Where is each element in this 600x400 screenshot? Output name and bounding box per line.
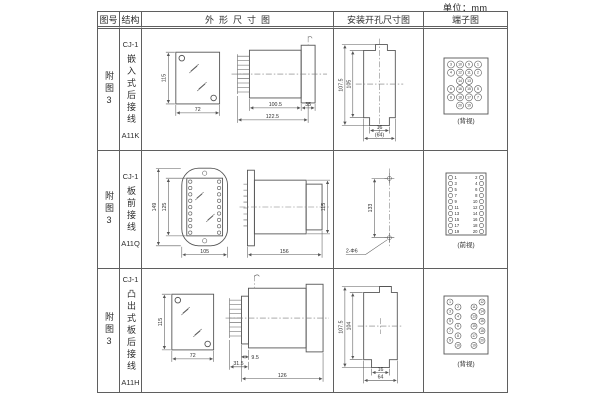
terminal-cell-row1: 3109141211214136161558181772019 (背视)	[424, 29, 507, 151]
header-terminal-diagram: 端子图	[424, 12, 507, 29]
install-cell-row1: 107.5 105 16 (64)	[334, 29, 424, 151]
structure-cell-row3: CJ-1 凸出式板后接线 A11H	[120, 269, 142, 392]
view-label: (背视)	[457, 359, 474, 368]
series-label: CJ-1	[123, 172, 139, 181]
svg-text:19: 19	[454, 229, 459, 234]
fig-label: 附图3	[104, 71, 113, 108]
svg-text:10: 10	[472, 199, 477, 204]
dim-label: 122.5	[266, 113, 279, 119]
svg-text:10: 10	[456, 343, 460, 347]
document-page: 单位：mm 图号 结构 外形尺寸图 安装开孔尺寸图 端子图 附图3 CJ-1 嵌…	[0, 0, 600, 400]
svg-text:12: 12	[458, 70, 462, 74]
svg-text:7: 7	[449, 328, 451, 332]
svg-text:12: 12	[472, 205, 477, 210]
fig-label: 附图3	[104, 191, 113, 228]
svg-text:8: 8	[457, 333, 459, 337]
terminal-diagram-a11h: 1357924681011131517191214161820 (背视)	[435, 293, 497, 369]
dim-label: 64	[378, 374, 384, 380]
svg-text:13: 13	[472, 314, 476, 318]
dim-label: 107.5	[338, 78, 344, 91]
dim-label: 125	[162, 202, 168, 211]
header-structure: 结构	[120, 12, 142, 29]
svg-text:3: 3	[450, 62, 452, 66]
header-fig-no: 图号	[98, 12, 120, 29]
svg-text:12: 12	[480, 300, 484, 304]
spec-table: 图号 结构 外形尺寸图 安装开孔尺寸图 端子图 附图3 CJ-1 嵌入式后接线 …	[97, 11, 508, 393]
svg-text:17: 17	[467, 95, 471, 99]
svg-text:10: 10	[458, 62, 462, 66]
svg-text:6: 6	[475, 187, 478, 192]
svg-text:17: 17	[472, 333, 476, 337]
svg-text:16: 16	[480, 319, 484, 323]
svg-text:15: 15	[467, 87, 471, 91]
model-code: A11Q	[121, 239, 140, 248]
svg-text:18: 18	[472, 223, 477, 228]
fig-cell-row1: 附图3	[98, 29, 120, 151]
svg-text:9: 9	[454, 199, 457, 204]
svg-text:13: 13	[467, 78, 471, 82]
terminal-cell-row2: 1357911131517192468101214161820 (前视)	[424, 151, 507, 269]
svg-text:5: 5	[477, 87, 479, 91]
svg-text:4: 4	[450, 70, 452, 74]
dim-label: 104	[346, 321, 352, 330]
dim-label: 115	[321, 202, 327, 210]
svg-text:2: 2	[477, 70, 479, 74]
svg-text:9: 9	[468, 62, 470, 66]
svg-text:15: 15	[454, 217, 459, 222]
svg-text:7: 7	[477, 95, 479, 99]
model-code: A11H	[121, 378, 139, 387]
dim-label: 105	[346, 79, 352, 88]
mount-label: 嵌入式后接线	[126, 54, 135, 126]
svg-text:3: 3	[449, 309, 451, 313]
dim-label: 126	[278, 372, 287, 378]
dim-label: 115	[158, 317, 164, 325]
fig-label: 附图3	[104, 312, 113, 349]
svg-text:11: 11	[454, 205, 459, 210]
svg-text:20: 20	[472, 229, 477, 234]
outline-drawing-a11k: 115 72 100.5 35 122.5	[142, 34, 333, 146]
dim-label: 107.5	[338, 320, 344, 333]
install-drawing-a11q: 133 2-Φ6	[334, 154, 423, 266]
svg-text:13: 13	[454, 211, 459, 216]
svg-text:9: 9	[449, 338, 451, 342]
svg-text:2: 2	[475, 175, 478, 180]
terminal-cell-row3: 1357924681011131517191214161820 (背视)	[424, 269, 507, 392]
dim-label: 133	[368, 203, 374, 212]
svg-text:7: 7	[454, 193, 457, 198]
svg-text:18: 18	[458, 95, 462, 99]
svg-text:14: 14	[458, 78, 462, 82]
header-outline-dims: 外形尺寸图	[142, 12, 334, 29]
svg-text:1: 1	[449, 300, 451, 304]
svg-text:3: 3	[454, 181, 457, 186]
outline-cell-row2: 149 125 105 156 115	[142, 151, 334, 269]
install-drawing-a11h: 107.5 104 16 64	[334, 272, 423, 390]
svg-text:20: 20	[480, 338, 484, 342]
svg-text:17: 17	[454, 223, 459, 228]
outline-drawing-a11q: 149 125 105 156 115	[142, 154, 333, 266]
dim-label: 16	[377, 125, 383, 131]
fig-cell-row3: 附图3	[98, 269, 120, 392]
structure-cell-row1: CJ-1 嵌入式后接线 A11K	[120, 29, 142, 151]
dim-label: 149	[152, 202, 158, 211]
mount-label: 板前接线	[126, 186, 135, 234]
dim-label: 2-Φ6	[346, 248, 358, 254]
dim-label: 9.5	[251, 354, 258, 360]
svg-text:5: 5	[454, 187, 457, 192]
svg-text:8: 8	[450, 95, 452, 99]
svg-text:11: 11	[472, 305, 476, 309]
svg-text:20: 20	[458, 103, 462, 107]
dim-label: 156	[280, 248, 289, 254]
dim-label: 115	[161, 73, 167, 81]
svg-text:6: 6	[450, 87, 452, 91]
svg-text:14: 14	[480, 309, 484, 313]
install-drawing-a11k: 107.5 105 16 (64)	[334, 34, 423, 146]
svg-text:19: 19	[467, 103, 471, 107]
install-cell-row2: 133 2-Φ6	[334, 151, 424, 269]
svg-text:1: 1	[454, 175, 457, 180]
svg-text:1: 1	[477, 62, 479, 66]
svg-text:6: 6	[457, 324, 459, 328]
svg-text:8: 8	[475, 193, 478, 198]
dim-label: 72	[195, 106, 201, 112]
terminal-diagram-a11k: 3109141211214136161558181772019 (背视)	[435, 54, 497, 126]
outline-drawing-a11h: 115 72 9.5 31.5 126	[142, 272, 333, 390]
fig-cell-row2: 附图3	[98, 151, 120, 269]
series-label: CJ-1	[123, 40, 139, 49]
svg-text:19: 19	[472, 343, 476, 347]
structure-cell-row2: CJ-1 板前接线 A11Q	[120, 151, 142, 269]
svg-text:15: 15	[472, 324, 476, 328]
dim-label: 31.5	[233, 360, 243, 366]
svg-text:14: 14	[472, 211, 477, 216]
dim-label: 72	[190, 352, 196, 358]
model-code: A11K	[122, 131, 140, 140]
install-cell-row3: 107.5 104 16 64	[334, 269, 424, 392]
dim-label: 105	[200, 248, 209, 254]
outline-cell-row3: 115 72 9.5 31.5 126	[142, 269, 334, 392]
view-label: (前视)	[457, 240, 474, 249]
view-label: (背视)	[457, 116, 474, 125]
mount-label: 凸出式板后接线	[126, 289, 135, 373]
dim-label: 100.5	[269, 101, 282, 107]
svg-text:18: 18	[480, 328, 484, 332]
terminal-diagram-a11q: 1357911131517192468101214161820 (前视)	[435, 170, 497, 250]
dim-label: (64)	[375, 132, 385, 138]
svg-text:2: 2	[457, 305, 459, 309]
outline-cell-row1: 115 72 100.5 35 122.5	[142, 29, 334, 151]
svg-text:5: 5	[449, 319, 451, 323]
svg-text:16: 16	[472, 217, 477, 222]
svg-text:4: 4	[475, 181, 478, 186]
svg-text:4: 4	[457, 314, 459, 318]
svg-text:16: 16	[458, 87, 462, 91]
header-install-holes: 安装开孔尺寸图	[334, 12, 424, 29]
svg-text:11: 11	[467, 70, 471, 74]
dim-label: 16	[378, 367, 384, 373]
series-label: CJ-1	[123, 275, 139, 284]
